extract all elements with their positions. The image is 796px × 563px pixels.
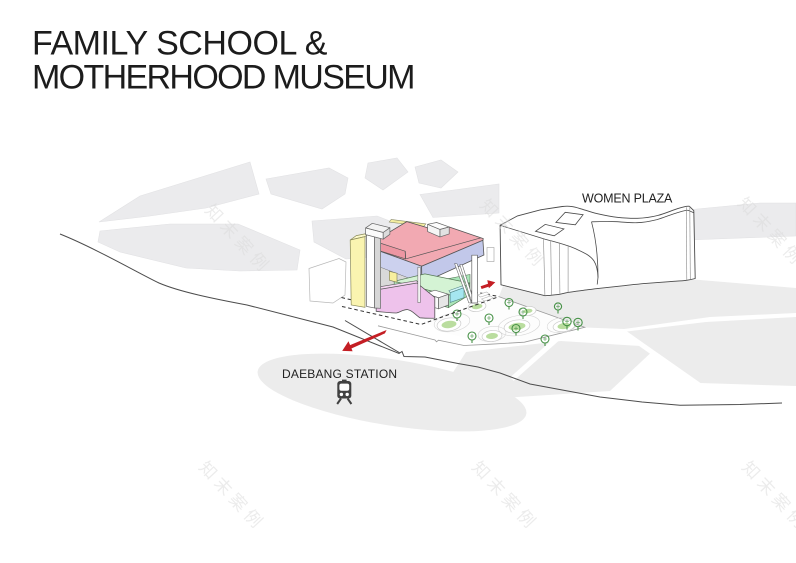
svg-text:WOMEN PLAZA: WOMEN PLAZA xyxy=(582,192,673,206)
svg-text:DAEBANG STATION: DAEBANG STATION xyxy=(282,367,397,381)
svg-text:MOTHERHOOD MUSEUM: MOTHERHOOD MUSEUM xyxy=(32,58,414,96)
svg-text:FAMILY SCHOOL &: FAMILY SCHOOL & xyxy=(32,24,328,62)
